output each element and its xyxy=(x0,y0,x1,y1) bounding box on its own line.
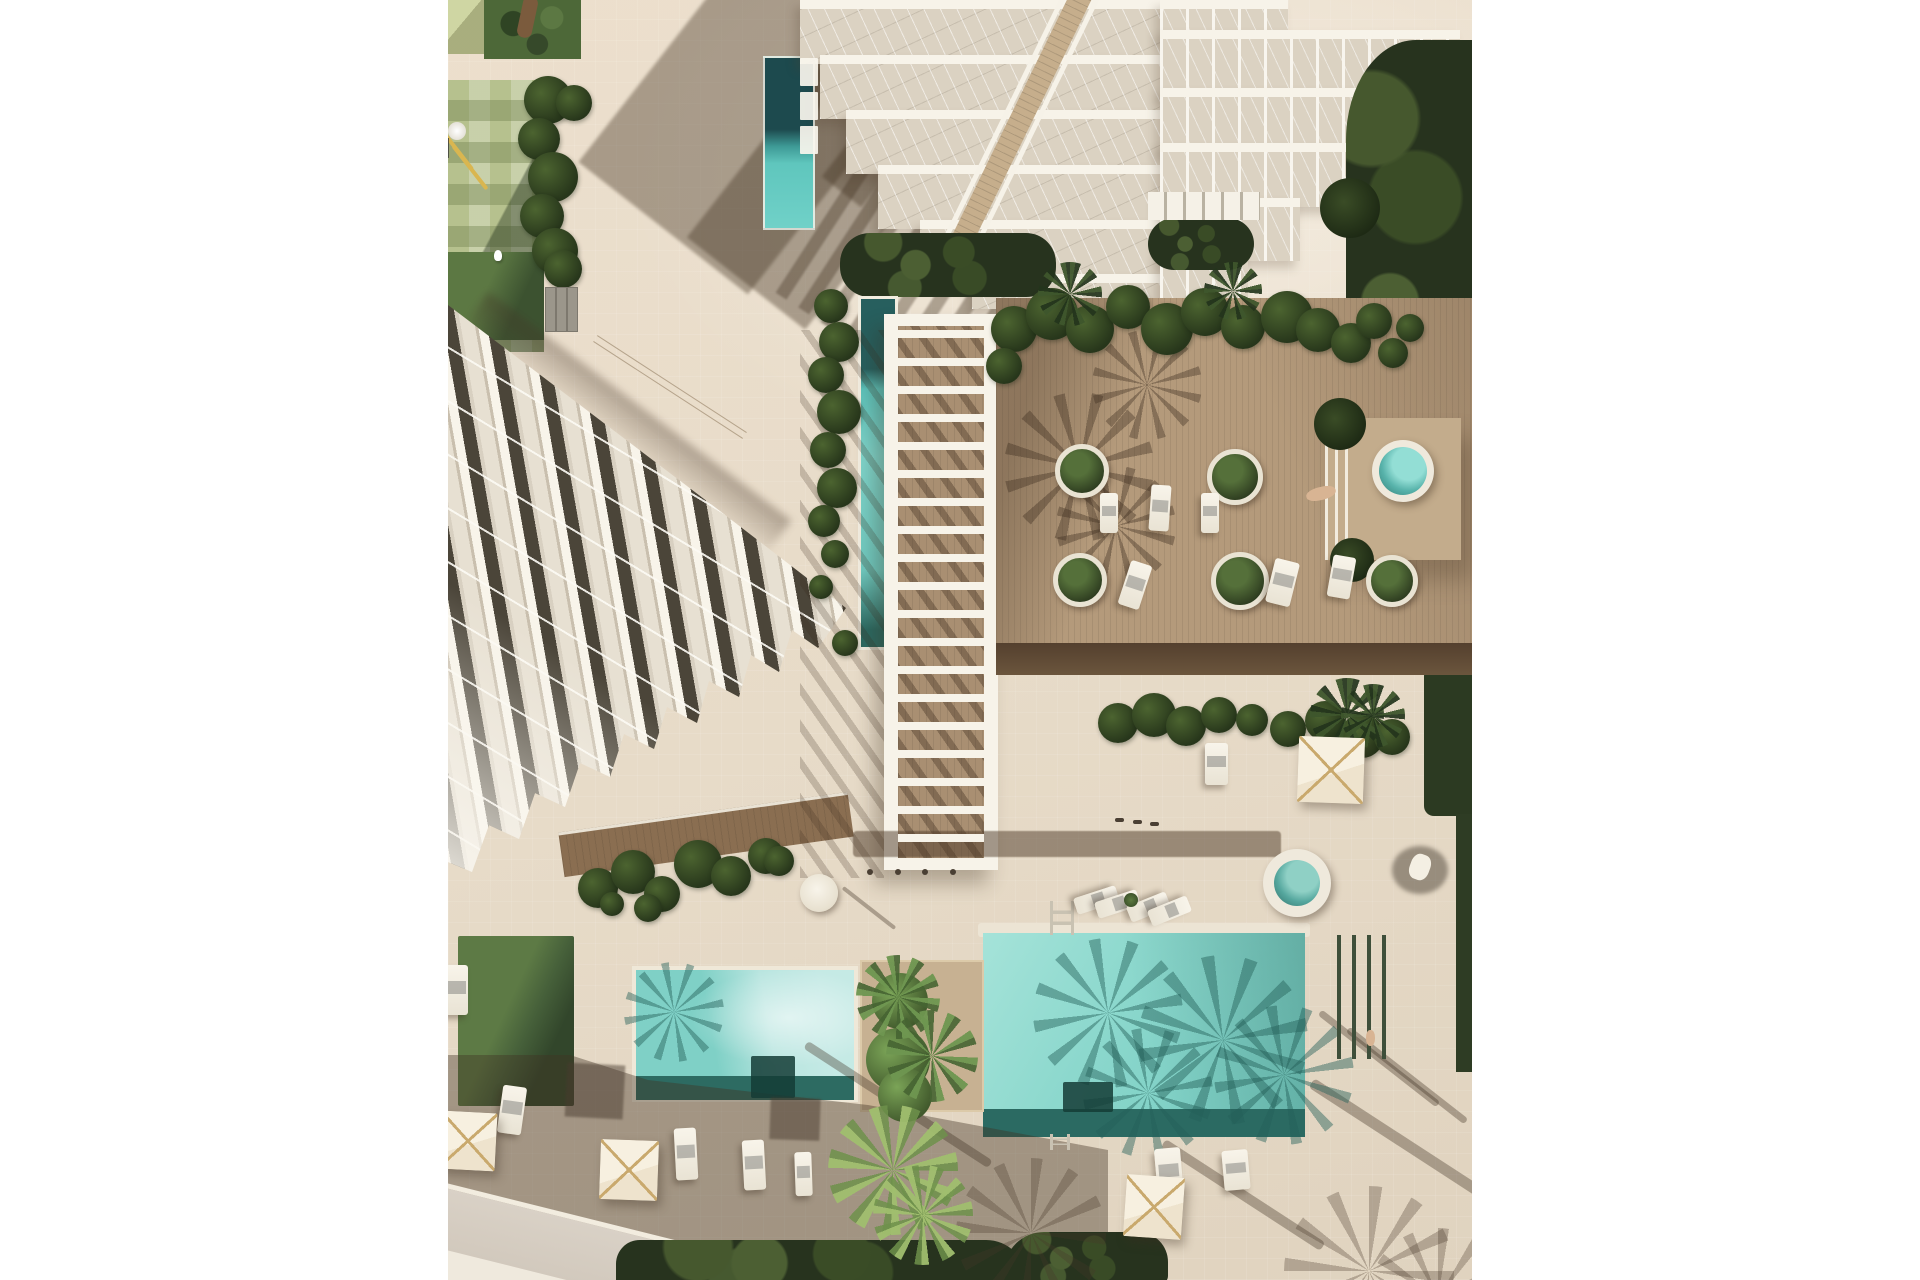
bush xyxy=(1378,338,1408,368)
slab xyxy=(800,92,818,120)
dash xyxy=(1150,822,1159,826)
lounger xyxy=(1221,1149,1250,1191)
aerial-render xyxy=(448,0,1472,1280)
bench xyxy=(567,287,578,332)
lounger xyxy=(1265,558,1300,608)
pergola-rung xyxy=(898,330,984,338)
bench xyxy=(545,287,556,332)
swing-pole xyxy=(451,145,488,191)
psh-beige xyxy=(956,1158,1106,1280)
dot xyxy=(895,869,901,875)
blob-dark xyxy=(1314,398,1366,450)
dash xyxy=(1115,818,1124,822)
planter xyxy=(1053,553,1107,607)
pergola-rung xyxy=(898,834,984,842)
bush xyxy=(808,357,844,393)
umbsh xyxy=(769,1097,820,1141)
pool-step xyxy=(751,1056,795,1098)
bar xyxy=(1352,935,1356,1059)
bush xyxy=(1166,706,1206,746)
lounger xyxy=(674,1127,699,1180)
dog xyxy=(494,250,502,261)
umb xyxy=(448,1111,497,1172)
palm-dark xyxy=(1204,262,1262,320)
pergola-rung xyxy=(898,610,984,618)
blob-dark xyxy=(1320,178,1380,238)
palm-dark xyxy=(1038,262,1102,326)
dash xyxy=(1133,820,1142,824)
pergola-rung xyxy=(898,526,984,534)
person xyxy=(1366,1030,1375,1046)
bush xyxy=(810,432,846,468)
pergola-rung xyxy=(898,694,984,702)
pergola-rung xyxy=(898,750,984,758)
pergola-rung xyxy=(898,358,984,366)
bench xyxy=(556,287,567,332)
bush xyxy=(832,630,858,656)
bush xyxy=(711,856,751,896)
rail xyxy=(593,335,747,439)
bush xyxy=(986,348,1022,384)
umb xyxy=(599,1139,659,1201)
psh-teal xyxy=(624,962,724,1062)
lounger xyxy=(1205,743,1228,785)
lounger xyxy=(1100,493,1118,533)
pergola-rung xyxy=(898,722,984,730)
bush xyxy=(814,289,848,323)
lounger xyxy=(1201,493,1219,533)
bush xyxy=(817,468,857,508)
bush xyxy=(556,85,592,121)
dot xyxy=(867,869,873,875)
pergola-rung xyxy=(898,386,984,394)
pergola-rung xyxy=(898,470,984,478)
bar xyxy=(1337,935,1341,1059)
dot xyxy=(950,869,956,875)
bar xyxy=(1382,935,1386,1059)
streak xyxy=(842,886,896,930)
palm-mid xyxy=(886,1010,978,1102)
planter xyxy=(1366,555,1418,607)
umb xyxy=(1123,1174,1185,1240)
bush xyxy=(1356,303,1392,339)
lounger xyxy=(448,965,468,1015)
bush xyxy=(819,322,859,362)
lounger xyxy=(497,1085,527,1136)
lounger xyxy=(742,1139,767,1190)
slab xyxy=(800,58,818,86)
bush xyxy=(809,575,833,599)
bush xyxy=(1201,697,1237,733)
planter xyxy=(1055,444,1109,498)
pergola-rung xyxy=(898,414,984,422)
palm-light xyxy=(873,1165,973,1265)
lounger xyxy=(1148,484,1171,531)
umb xyxy=(1297,736,1365,804)
pergola-rung xyxy=(898,806,984,814)
pool-step xyxy=(1063,1082,1113,1112)
bush xyxy=(821,540,849,568)
pergola-rung xyxy=(898,638,984,646)
umb-round xyxy=(800,874,838,912)
bush xyxy=(544,250,582,288)
ladder xyxy=(1050,901,1074,935)
swing-dome xyxy=(448,122,466,140)
psh-teal xyxy=(1214,1005,1354,1145)
person xyxy=(1305,484,1337,504)
lounger xyxy=(794,1152,813,1197)
ladder xyxy=(1050,1134,1070,1150)
bush xyxy=(817,390,861,434)
bush xyxy=(600,892,624,916)
pot xyxy=(1124,893,1138,907)
slab xyxy=(800,126,818,154)
umbsh xyxy=(565,1063,626,1120)
bush xyxy=(808,505,840,537)
bush xyxy=(1236,704,1268,736)
bush xyxy=(764,846,794,876)
dot xyxy=(922,869,928,875)
pergola-rung xyxy=(898,442,984,450)
bush xyxy=(1396,314,1424,342)
pergola-rung xyxy=(898,498,984,506)
render-page xyxy=(0,0,1920,1280)
pergola-rung xyxy=(898,554,984,562)
bush xyxy=(634,894,662,922)
planter xyxy=(1211,552,1269,610)
pergola-rung xyxy=(898,666,984,674)
pergola-rung xyxy=(898,582,984,590)
pergola-rung xyxy=(898,778,984,786)
